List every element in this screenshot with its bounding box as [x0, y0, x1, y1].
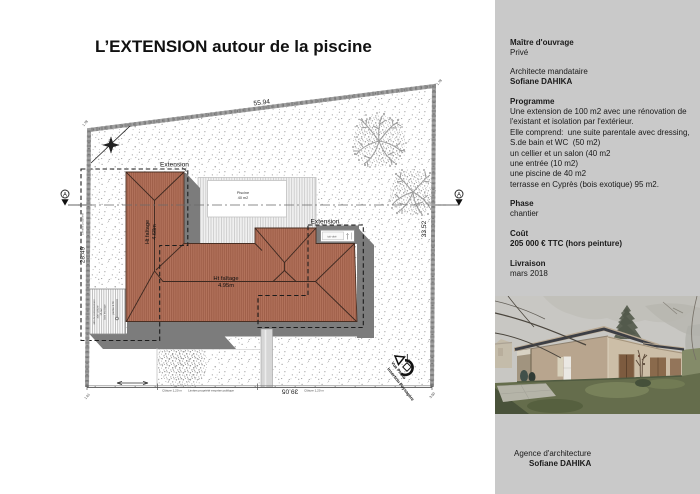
svg-text:A: A [63, 192, 67, 198]
svg-text:33.52: 33.52 [421, 220, 428, 237]
svg-text:A: A [457, 192, 461, 198]
svg-text:1.78: 1.78 [82, 119, 89, 127]
svg-text:bois exotique: bois exotique [103, 304, 107, 320]
svg-text:4.68m: 4.68m [152, 224, 158, 240]
svg-text:1.01: 1.01 [84, 392, 91, 400]
svg-text:Extension: Extension [311, 219, 340, 226]
svg-text:pente 3 %: pente 3 % [111, 301, 115, 315]
svg-text:1.78: 1.78 [436, 78, 443, 86]
svg-text:Ht faîtage: Ht faîtage [145, 220, 151, 244]
svg-text:28.49: 28.49 [80, 246, 87, 263]
svg-text:aire de stationnement: aire de stationnement [92, 299, 96, 324]
svg-text:15 m2: 15 m2 [99, 308, 103, 316]
svg-text:Clôture 1,20 m: Clôture 1,20 m [304, 389, 324, 393]
svg-text:39.05: 39.05 [281, 388, 298, 395]
svg-text:abri voiture: abri voiture [96, 305, 100, 318]
svg-text:Piscine: Piscine [237, 191, 249, 195]
svg-text:40 m2: 40 m2 [238, 196, 249, 200]
svg-text:Limites propriété: Limites propriété [81, 213, 85, 236]
svg-text:toit vitré: toit vitré [327, 235, 337, 239]
svg-text:Clôture 1,20 m: Clôture 1,20 m [162, 389, 182, 393]
svg-text:Extension: Extension [160, 162, 189, 169]
svg-text:Ht faîtage: Ht faîtage [213, 276, 238, 282]
svg-text:4.95m: 4.95m [218, 283, 234, 289]
svg-text:Limites propriété emprise publ: Limites propriété emprise publique [188, 389, 234, 393]
svg-text:3.50: 3.50 [429, 391, 436, 399]
